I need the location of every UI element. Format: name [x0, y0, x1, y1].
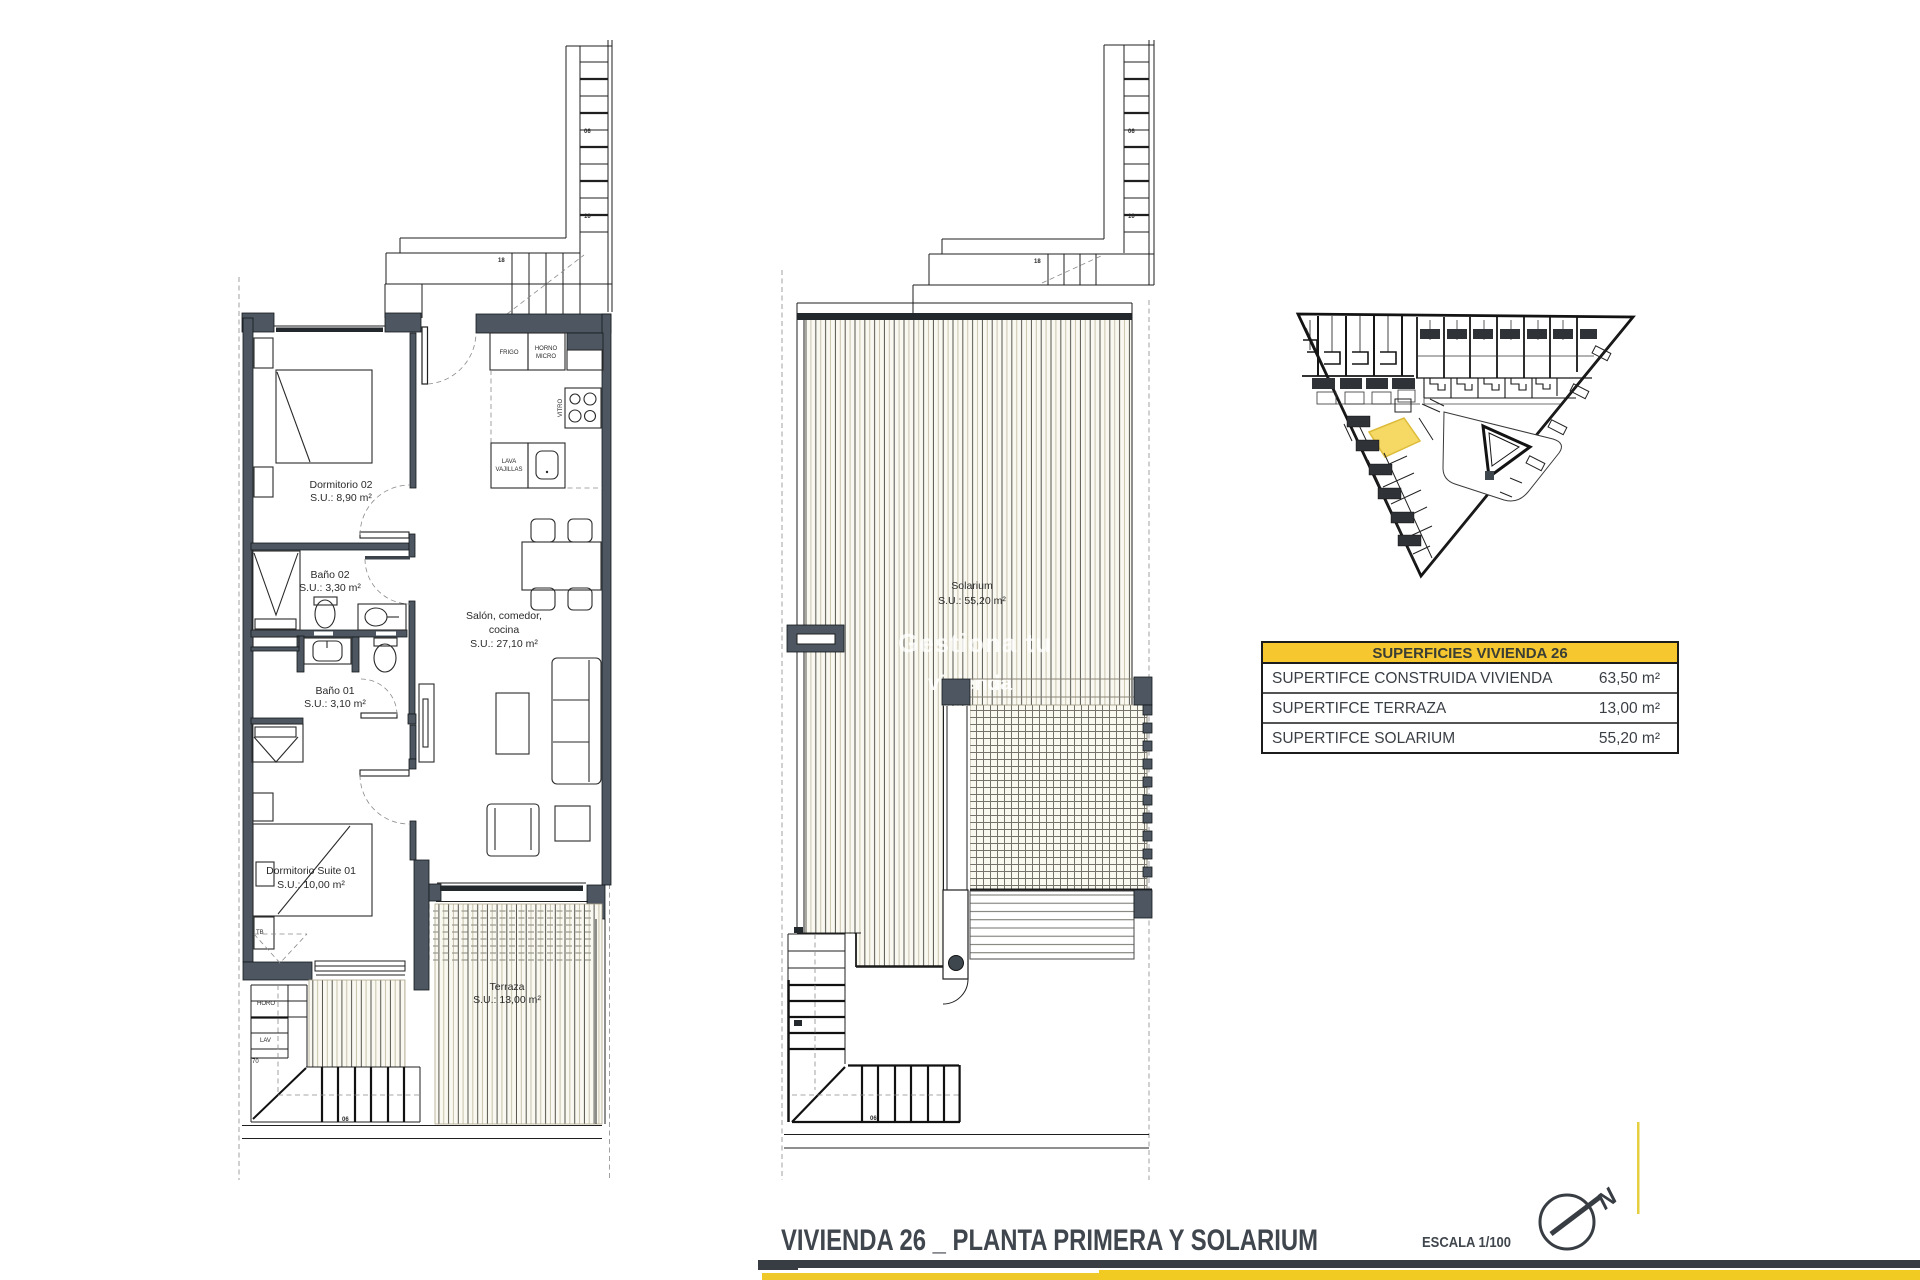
svg-text:S.U.: 55,20 m²: S.U.: 55,20 m²	[938, 595, 1006, 607]
svg-text:Baño 02: Baño 02	[310, 569, 349, 581]
svg-text:70: 70	[252, 1059, 259, 1065]
svg-text:FRIGO: FRIGO	[500, 350, 519, 356]
svg-text:Salón, comedor,: Salón, comedor,	[466, 610, 542, 622]
svg-text:S.U.: 8,90 m²: S.U.: 8,90 m²	[310, 492, 372, 504]
svg-text:S.U.: 13,00 m²: S.U.: 13,00 m²	[473, 994, 541, 1006]
svg-text:Dormitorio Suite 01: Dormitorio Suite 01	[266, 865, 356, 877]
svg-text:Terraza: Terraza	[489, 981, 524, 993]
svg-text:SUPERTIFCE SOLARIUM: SUPERTIFCE SOLARIUM	[1272, 730, 1455, 747]
svg-text:VITRO: VITRO	[558, 399, 564, 418]
svg-text:S.U.: 3,30 m²: S.U.: 3,30 m²	[299, 582, 361, 594]
svg-text:S.U.: 10,00 m²: S.U.: 10,00 m²	[277, 879, 345, 891]
svg-text:63,50 m²: 63,50 m²	[1599, 670, 1660, 687]
svg-text:SUPERFICIES VIVIENDA 26: SUPERFICIES VIVIENDA 26	[1372, 645, 1567, 662]
svg-text:LAVA: LAVA	[502, 459, 516, 465]
svg-text:SUPERTIFCE CONSTRUIDA VIVIENDA: SUPERTIFCE CONSTRUIDA VIVIENDA	[1272, 670, 1553, 687]
svg-text:VIVIENDA 26 _ PLANTA PRIMERA Y: VIVIENDA 26 _ PLANTA PRIMERA Y SOLARIUM	[781, 1224, 1318, 1257]
svg-text:18: 18	[1034, 259, 1041, 265]
svg-text:06: 06	[342, 1117, 349, 1123]
svg-text:HORNO: HORNO	[535, 346, 558, 352]
svg-text:13,00 m²: 13,00 m²	[1599, 700, 1660, 717]
svg-text:ESCALA 1/100: ESCALA 1/100	[1422, 1235, 1511, 1251]
svg-text:SUPERTIFCE TERRAZA: SUPERTIFCE TERRAZA	[1272, 700, 1447, 717]
svg-text:LAV: LAV	[260, 1038, 271, 1044]
svg-text:VAJILLAS: VAJILLAS	[496, 467, 523, 473]
svg-text:Dormitorio 02: Dormitorio 02	[309, 479, 372, 491]
svg-text:Baño 01: Baño 01	[315, 685, 354, 697]
svg-text:Solarium: Solarium	[951, 580, 993, 592]
svg-text:10: 10	[584, 214, 591, 220]
svg-text:MICRO: MICRO	[536, 354, 556, 360]
svg-text:06: 06	[1128, 129, 1135, 135]
svg-text:55,20 m²: 55,20 m²	[1599, 730, 1660, 747]
svg-text:S.U.: 27,10 m²: S.U.: 27,10 m²	[470, 638, 538, 650]
svg-text:HORO: HORO	[257, 1001, 275, 1007]
svg-text:cocina: cocina	[489, 624, 520, 636]
svg-text:TB: TB	[256, 930, 264, 936]
svg-text:10: 10	[1128, 214, 1135, 220]
svg-text:06: 06	[870, 1116, 877, 1122]
svg-text:S.U.: 3,10 m²: S.U.: 3,10 m²	[304, 698, 366, 710]
svg-text:06: 06	[584, 129, 591, 135]
svg-text:Gestiona tu: Gestiona tu	[898, 628, 1052, 658]
svg-text:18: 18	[498, 258, 505, 264]
